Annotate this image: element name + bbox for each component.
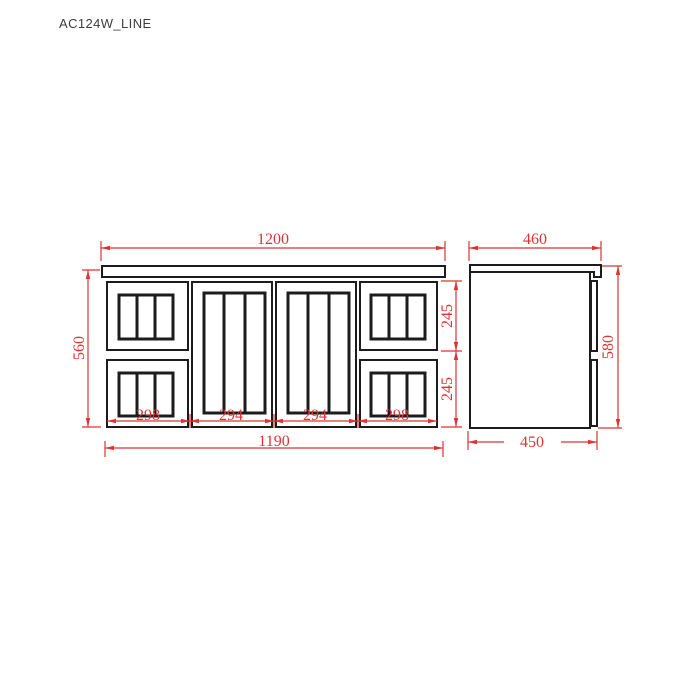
dim-value: 580 (600, 335, 617, 359)
dim-value: 298 (385, 407, 409, 424)
dim-value: 245 (439, 304, 456, 328)
dim-top-width: 1200 (101, 231, 445, 261)
dim-arrow (436, 246, 445, 250)
dim-arrow (86, 418, 90, 427)
carcass-side (470, 272, 590, 428)
dim-side-bottom-depth: 450 (468, 431, 597, 451)
drawing-canvas: AC124W_LINE (0, 0, 700, 700)
cabinet-line-drawing: 1200 560 245 24 (0, 0, 700, 700)
front-edge-bottom (591, 360, 597, 426)
dim-arrow (105, 446, 114, 450)
dim-arrow (454, 342, 458, 351)
dim-side-height: 580 (598, 266, 622, 428)
dim-arrow (454, 351, 458, 360)
countertop (102, 266, 445, 277)
dim-side-top-depth: 460 (469, 231, 601, 261)
dim-value: 1190 (258, 433, 289, 450)
dim-arrow (101, 246, 110, 250)
dim-value: 294 (219, 407, 243, 424)
dim-right-heights: 245 245 (439, 281, 462, 427)
dim-value: 294 (303, 407, 327, 424)
dim-arrow (588, 440, 597, 444)
dim-value: 450 (520, 434, 544, 451)
dim-bottom-width: 1190 (105, 433, 443, 457)
dim-value: 298 (136, 407, 160, 424)
dim-value: 245 (439, 377, 456, 401)
dim-arrow (469, 246, 478, 250)
dim-value: 560 (71, 336, 88, 360)
dim-value: 460 (523, 231, 547, 248)
dim-arrow (616, 266, 620, 275)
dim-arrow (468, 440, 477, 444)
dim-arrow (454, 418, 458, 427)
dim-arrow (434, 446, 443, 450)
dim-value: 1200 (257, 231, 289, 248)
front-edge-top (591, 281, 597, 351)
dim-left-height: 560 (71, 270, 101, 427)
dim-arrow (592, 246, 601, 250)
dim-arrow (86, 270, 90, 279)
dim-arrow (454, 281, 458, 290)
front-view (102, 266, 445, 427)
side-view (470, 265, 601, 428)
dim-arrow (616, 419, 620, 428)
